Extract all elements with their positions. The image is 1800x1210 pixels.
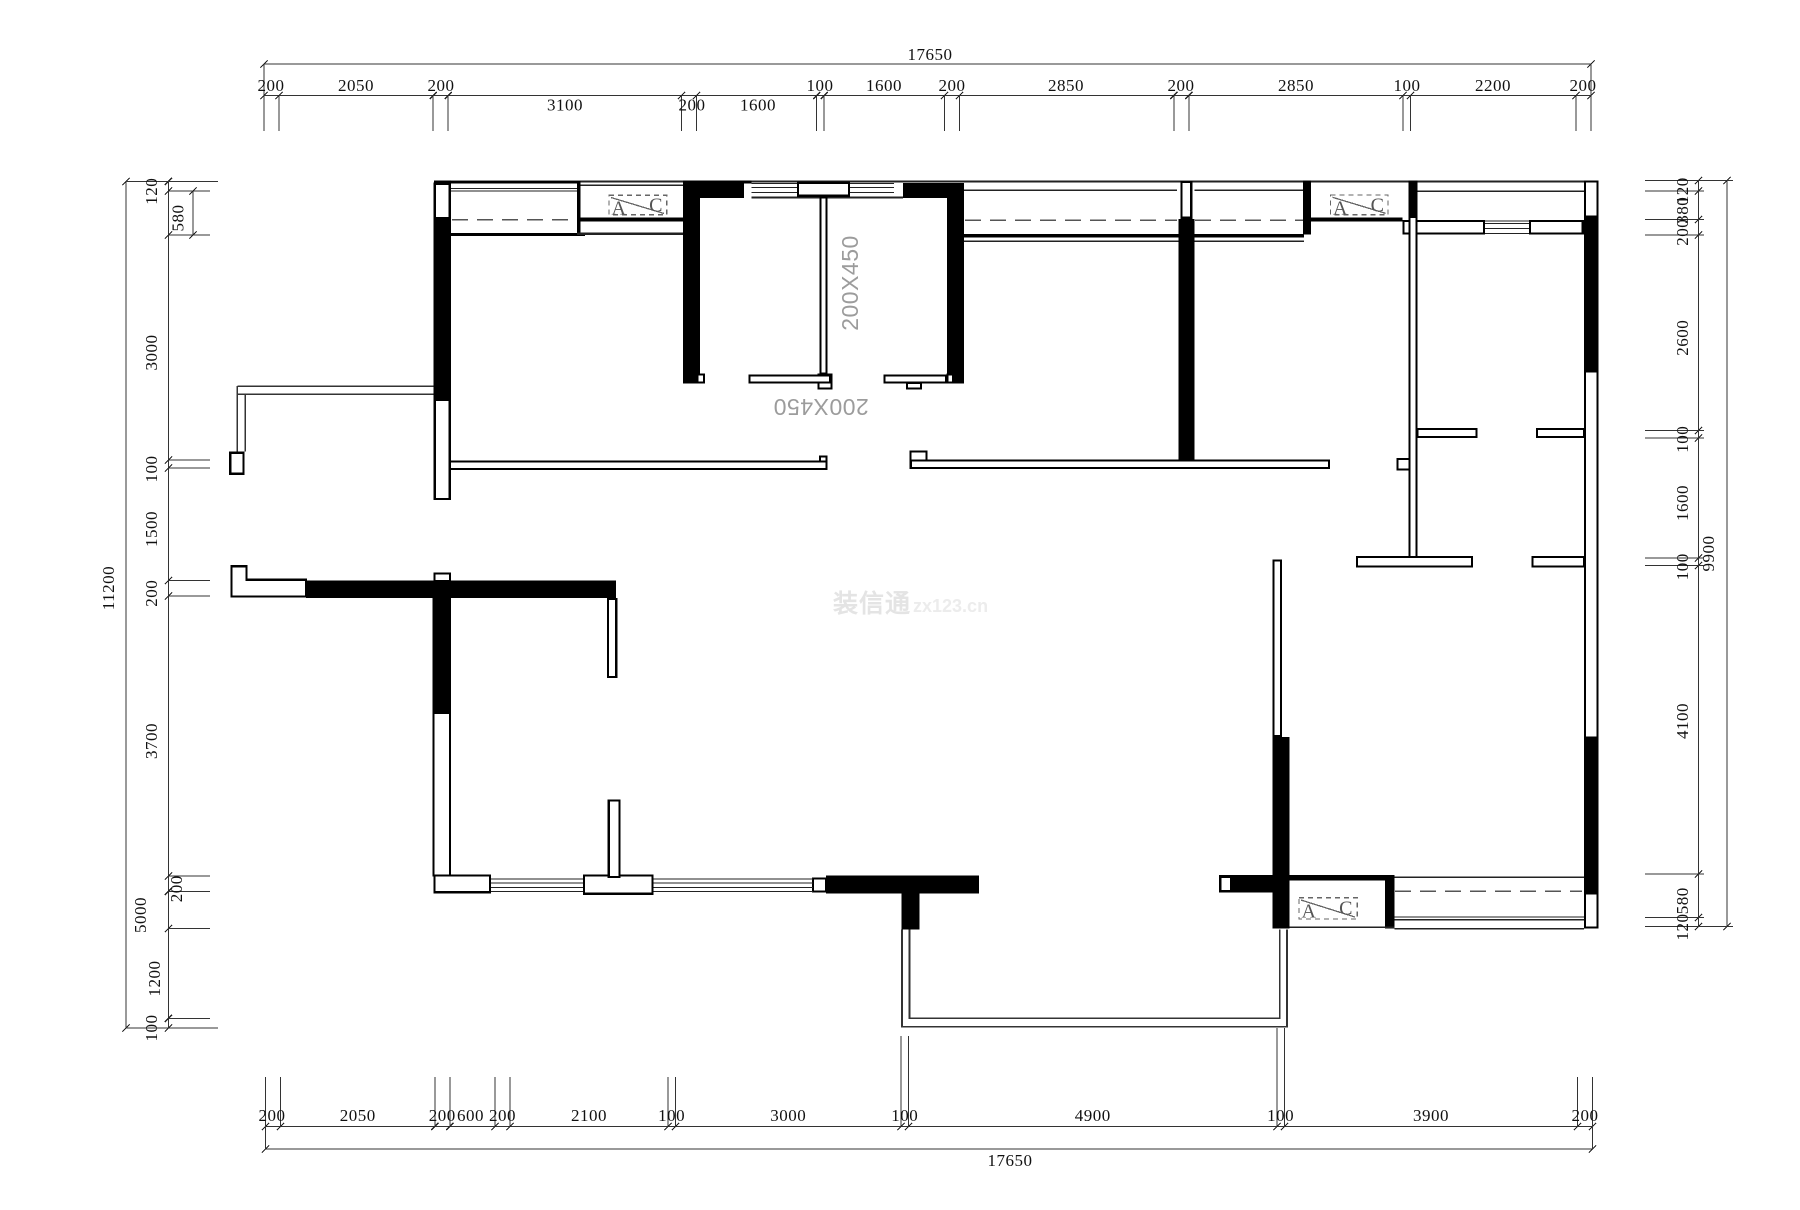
svg-text:600: 600: [457, 1106, 484, 1125]
svg-text:200: 200: [1673, 219, 1692, 246]
svg-text:A: A: [612, 198, 627, 220]
svg-text:9900: 9900: [1699, 536, 1718, 572]
svg-text:2200: 2200: [1475, 76, 1511, 95]
svg-text:3100: 3100: [547, 96, 583, 115]
svg-text:100: 100: [1673, 553, 1692, 580]
svg-text:200: 200: [428, 76, 455, 95]
svg-text:1500: 1500: [142, 511, 161, 547]
svg-text:C: C: [1371, 194, 1385, 216]
svg-text:C: C: [1339, 898, 1353, 920]
svg-text:A: A: [1302, 901, 1317, 923]
svg-text:17650: 17650: [988, 1151, 1033, 1170]
svg-text:3000: 3000: [770, 1106, 806, 1125]
svg-text:200: 200: [939, 76, 966, 95]
svg-text:200: 200: [1570, 76, 1597, 95]
svg-text:3700: 3700: [142, 723, 161, 759]
svg-text:4100: 4100: [1673, 703, 1692, 739]
svg-text:2050: 2050: [338, 76, 374, 95]
svg-text:100: 100: [142, 456, 161, 483]
svg-text:1600: 1600: [1673, 485, 1692, 521]
svg-text:1600: 1600: [866, 76, 902, 95]
svg-text:100: 100: [1673, 426, 1692, 453]
svg-text:2050: 2050: [340, 1106, 376, 1125]
svg-text:1200: 1200: [145, 961, 164, 997]
svg-text:100: 100: [1267, 1106, 1294, 1125]
svg-text:100: 100: [658, 1106, 685, 1125]
svg-text:4900: 4900: [1075, 1106, 1111, 1125]
svg-text:120: 120: [1673, 914, 1692, 941]
svg-text:3000: 3000: [142, 335, 161, 371]
svg-text:3900: 3900: [1413, 1106, 1449, 1125]
svg-text:17650: 17650: [908, 45, 953, 64]
svg-text:200X450: 200X450: [837, 235, 863, 331]
svg-text:200: 200: [679, 96, 706, 115]
svg-text:100: 100: [1394, 76, 1421, 95]
svg-text:C: C: [649, 195, 663, 217]
svg-text:200: 200: [258, 76, 285, 95]
svg-text:11200: 11200: [99, 566, 118, 610]
svg-text:2850: 2850: [1048, 76, 1084, 95]
svg-text:5000: 5000: [131, 897, 150, 933]
svg-text:2850: 2850: [1278, 76, 1314, 95]
svg-text:100: 100: [142, 1015, 161, 1042]
svg-text:200: 200: [1572, 1106, 1599, 1125]
svg-text:200: 200: [429, 1106, 456, 1125]
svg-text:100: 100: [891, 1106, 918, 1125]
svg-text:200X450: 200X450: [773, 394, 869, 420]
svg-text:580: 580: [1673, 887, 1692, 914]
svg-text:2100: 2100: [571, 1106, 607, 1125]
svg-text:200: 200: [167, 875, 186, 902]
svg-text:A: A: [1333, 197, 1348, 219]
svg-text:1600: 1600: [740, 96, 776, 115]
svg-text:200: 200: [489, 1106, 516, 1125]
svg-text:580: 580: [169, 205, 188, 232]
svg-text:200: 200: [1168, 76, 1195, 95]
svg-text:200: 200: [259, 1106, 286, 1125]
svg-text:200: 200: [142, 580, 161, 607]
svg-text:120: 120: [142, 178, 161, 205]
svg-text:100: 100: [807, 76, 834, 95]
svg-text:2600: 2600: [1673, 320, 1692, 356]
